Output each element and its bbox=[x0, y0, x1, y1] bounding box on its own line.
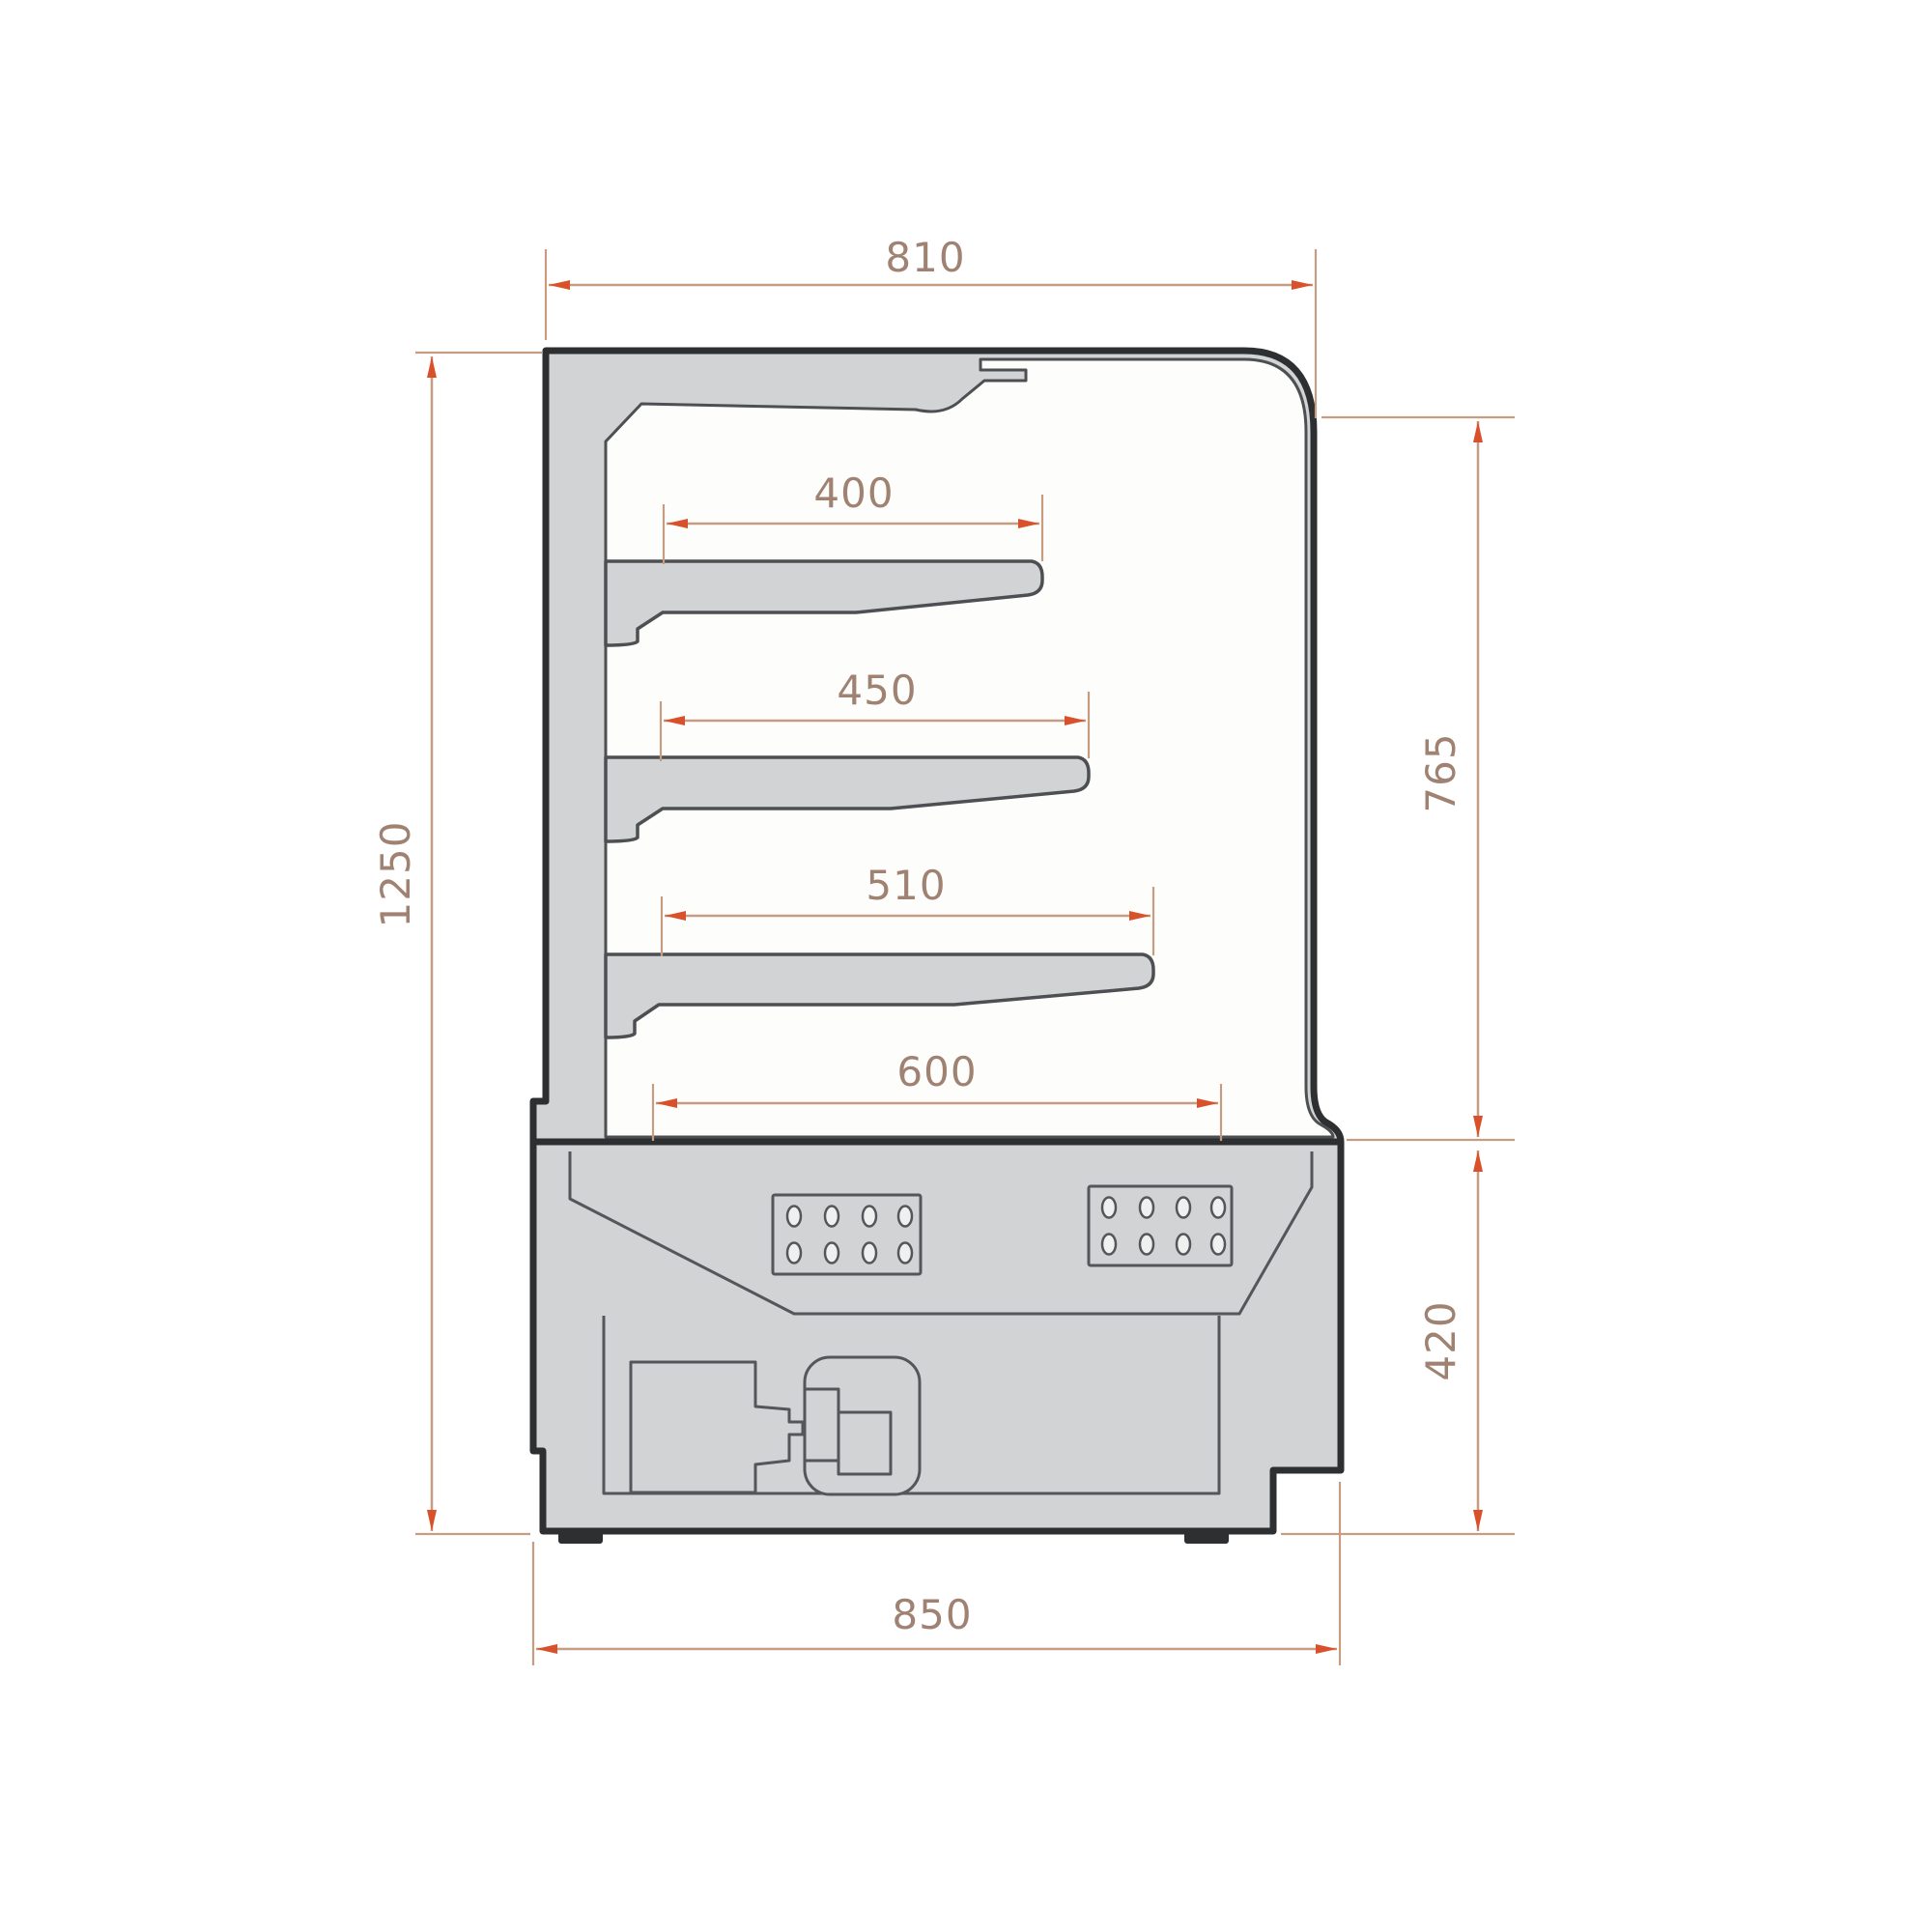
dim-label-shelf-2-depth: 450 bbox=[837, 667, 917, 714]
display-interior bbox=[606, 359, 1333, 1137]
technical-drawing-page: 810 1250 400 450 510 bbox=[0, 0, 1932, 1932]
dim-label-deck-depth: 600 bbox=[896, 1048, 977, 1095]
dim-label-shelf-3-depth: 510 bbox=[866, 862, 946, 909]
compressor-body bbox=[838, 1412, 891, 1474]
foot-left bbox=[558, 1531, 603, 1544]
dimension-overall-height: 1250 bbox=[372, 353, 542, 1534]
dim-label-upper-height: 765 bbox=[1417, 732, 1464, 812]
vent-grille-left bbox=[773, 1195, 921, 1274]
foot-right bbox=[1184, 1531, 1229, 1544]
compressor-mount bbox=[805, 1389, 838, 1461]
dim-label-top-width: 810 bbox=[885, 234, 965, 281]
dim-label-shelf-1-depth: 400 bbox=[813, 469, 894, 517]
dimension-upper-height: 765 bbox=[1321, 417, 1515, 1140]
dim-label-base-width: 850 bbox=[892, 1591, 972, 1638]
vent-grille-right bbox=[1089, 1186, 1232, 1265]
cabinet-technical-drawing: 810 1250 400 450 510 bbox=[0, 0, 1932, 1932]
dim-label-base-height: 420 bbox=[1417, 1300, 1464, 1380]
dim-label-overall-height: 1250 bbox=[372, 821, 419, 928]
